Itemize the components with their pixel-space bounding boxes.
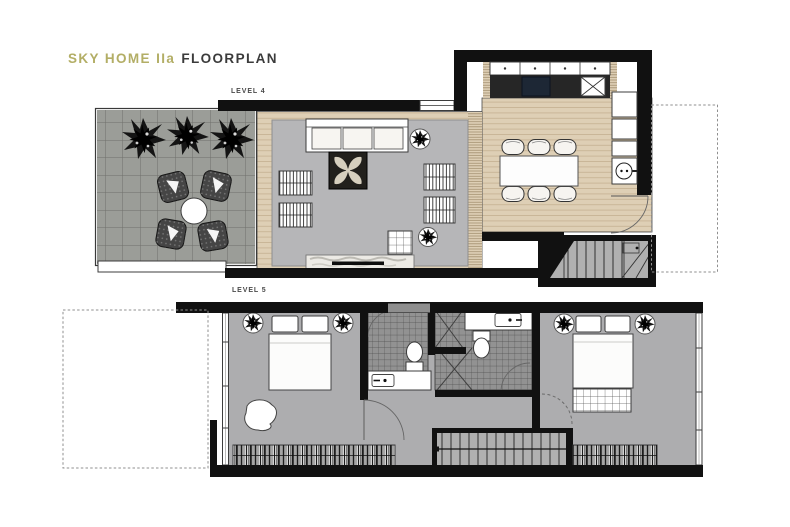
wardrobe (233, 445, 395, 466)
terrace-table (181, 198, 207, 224)
wall (454, 50, 467, 111)
level-5-plan (63, 302, 703, 477)
wall (360, 302, 368, 400)
lounge-chair (424, 164, 455, 190)
roof-outline-dashed (652, 105, 718, 272)
appliance (612, 92, 637, 117)
window-wall-left (223, 313, 229, 465)
potted-plant (635, 314, 655, 334)
potted-plant (333, 313, 353, 333)
terrace (96, 109, 257, 273)
toilet (473, 331, 490, 358)
appliance-column (612, 92, 638, 184)
pillow (302, 316, 328, 332)
wall (210, 420, 217, 466)
toilet (406, 342, 423, 372)
stairs-level4 (538, 235, 656, 287)
lounge-chair (279, 171, 312, 195)
pillow (272, 316, 298, 332)
dining-chair (554, 187, 576, 202)
kitchen (483, 62, 617, 98)
terrace-chair (199, 169, 232, 202)
potted-plant (554, 314, 574, 334)
dining-table (500, 156, 578, 186)
dining-chair (502, 140, 524, 155)
dining-chair (528, 187, 550, 202)
potted-plant (243, 313, 263, 333)
window-wall-right (696, 313, 702, 465)
terrace-planter (98, 261, 226, 272)
appliance (612, 119, 637, 139)
wall-segment (388, 304, 430, 313)
tv (332, 262, 384, 266)
bathroom-1 (368, 310, 431, 390)
pillow (576, 316, 601, 332)
bed-bench (573, 389, 631, 412)
potted-plant (419, 228, 438, 247)
floorplan-canvas (0, 0, 790, 527)
dining-chair (554, 140, 576, 155)
dining-chair (502, 187, 524, 202)
vanity (368, 371, 431, 390)
wall (428, 347, 466, 354)
potted-plant (410, 129, 430, 149)
terrace-chair (197, 220, 229, 252)
wall (225, 268, 538, 278)
lounge-chair (279, 203, 312, 227)
appliance (612, 141, 637, 156)
cooktop (522, 77, 550, 96)
dining-set (500, 140, 578, 202)
wall (532, 302, 540, 432)
kitchen-sink (581, 77, 605, 96)
grid-side-table (388, 231, 412, 254)
window (420, 101, 454, 111)
level-4-plan (96, 50, 718, 287)
wall (210, 465, 703, 477)
coffee-table (329, 152, 367, 189)
terrace-chair (155, 218, 187, 250)
wardrobe (573, 445, 657, 466)
stairs-level5 (432, 428, 573, 468)
wall (454, 50, 652, 62)
pillow (605, 316, 630, 332)
lounge-chair (424, 197, 455, 223)
wall (637, 50, 652, 195)
tv-console (306, 255, 414, 269)
void-outline-dashed (63, 310, 208, 468)
floorplan-page: SKY HOME IIaFLOORPLAN LEVEL 4 LEVEL 5 (0, 0, 790, 527)
wall (176, 302, 703, 313)
dining-chair (528, 140, 550, 155)
wall (435, 390, 540, 397)
